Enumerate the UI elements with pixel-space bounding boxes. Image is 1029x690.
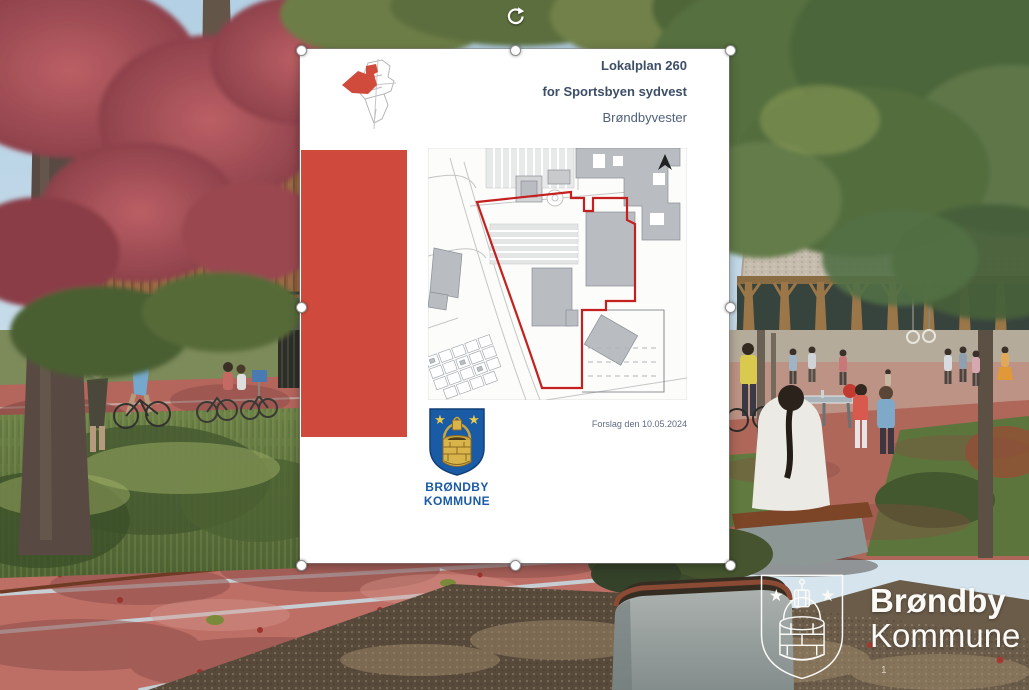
- svg-text:★: ★: [434, 413, 446, 428]
- selection-handle-top-left[interactable]: [296, 45, 307, 56]
- rotate-handle[interactable]: [505, 6, 526, 27]
- watermark-logo: ★ ★ Brøndby Kommune: [756, 566, 1020, 686]
- watermark-line-1: Brøndby: [870, 583, 1020, 618]
- title-line-1: Lokalplan 260: [543, 53, 688, 79]
- watermark-line-2: Kommune: [870, 618, 1020, 653]
- locator-map: [338, 57, 410, 139]
- selection-handle-middle-left[interactable]: [296, 302, 307, 313]
- watermark-text: Brøndby Kommune: [870, 583, 1020, 653]
- selection-handle-top-right[interactable]: [725, 45, 736, 56]
- selection-handle-bottom-center[interactable]: [510, 560, 521, 571]
- svg-text:★: ★: [820, 586, 835, 605]
- site-map: [428, 148, 687, 400]
- watermark-crest-icon: ★ ★: [756, 566, 848, 686]
- svg-text:★: ★: [468, 413, 480, 428]
- title-line-2: for Sportsbyen sydvest: [543, 79, 688, 105]
- date-note: Forslag den 10.05.2024: [592, 419, 687, 429]
- crest-caption-line-2: KOMMUNE: [397, 494, 517, 508]
- page-number: 1: [881, 665, 887, 676]
- selection-handle-middle-right[interactable]: [725, 302, 736, 313]
- accent-red-bar: [301, 150, 407, 437]
- document-title-block: Lokalplan 260 for Sportsbyen sydvest Brø…: [543, 53, 688, 131]
- slide-editor-canvas: Lokalplan 260 for Sportsbyen sydvest Brø…: [0, 0, 1029, 690]
- rotate-icon-arrowhead: [518, 7, 524, 14]
- title-subtitle: Brøndbyvester: [543, 105, 688, 131]
- svg-text:★: ★: [769, 586, 784, 605]
- crest-caption-line-1: BRØNDBY: [397, 480, 517, 494]
- slide-document[interactable]: Lokalplan 260 for Sportsbyen sydvest Brø…: [300, 49, 729, 563]
- selection-handle-top-center[interactable]: [510, 45, 521, 56]
- municipal-crest-icon: ★ ★: [427, 406, 487, 478]
- selection-handle-bottom-right[interactable]: [725, 560, 736, 571]
- selection-handle-bottom-left[interactable]: [296, 560, 307, 571]
- crest-caption: BRØNDBY KOMMUNE: [397, 480, 517, 508]
